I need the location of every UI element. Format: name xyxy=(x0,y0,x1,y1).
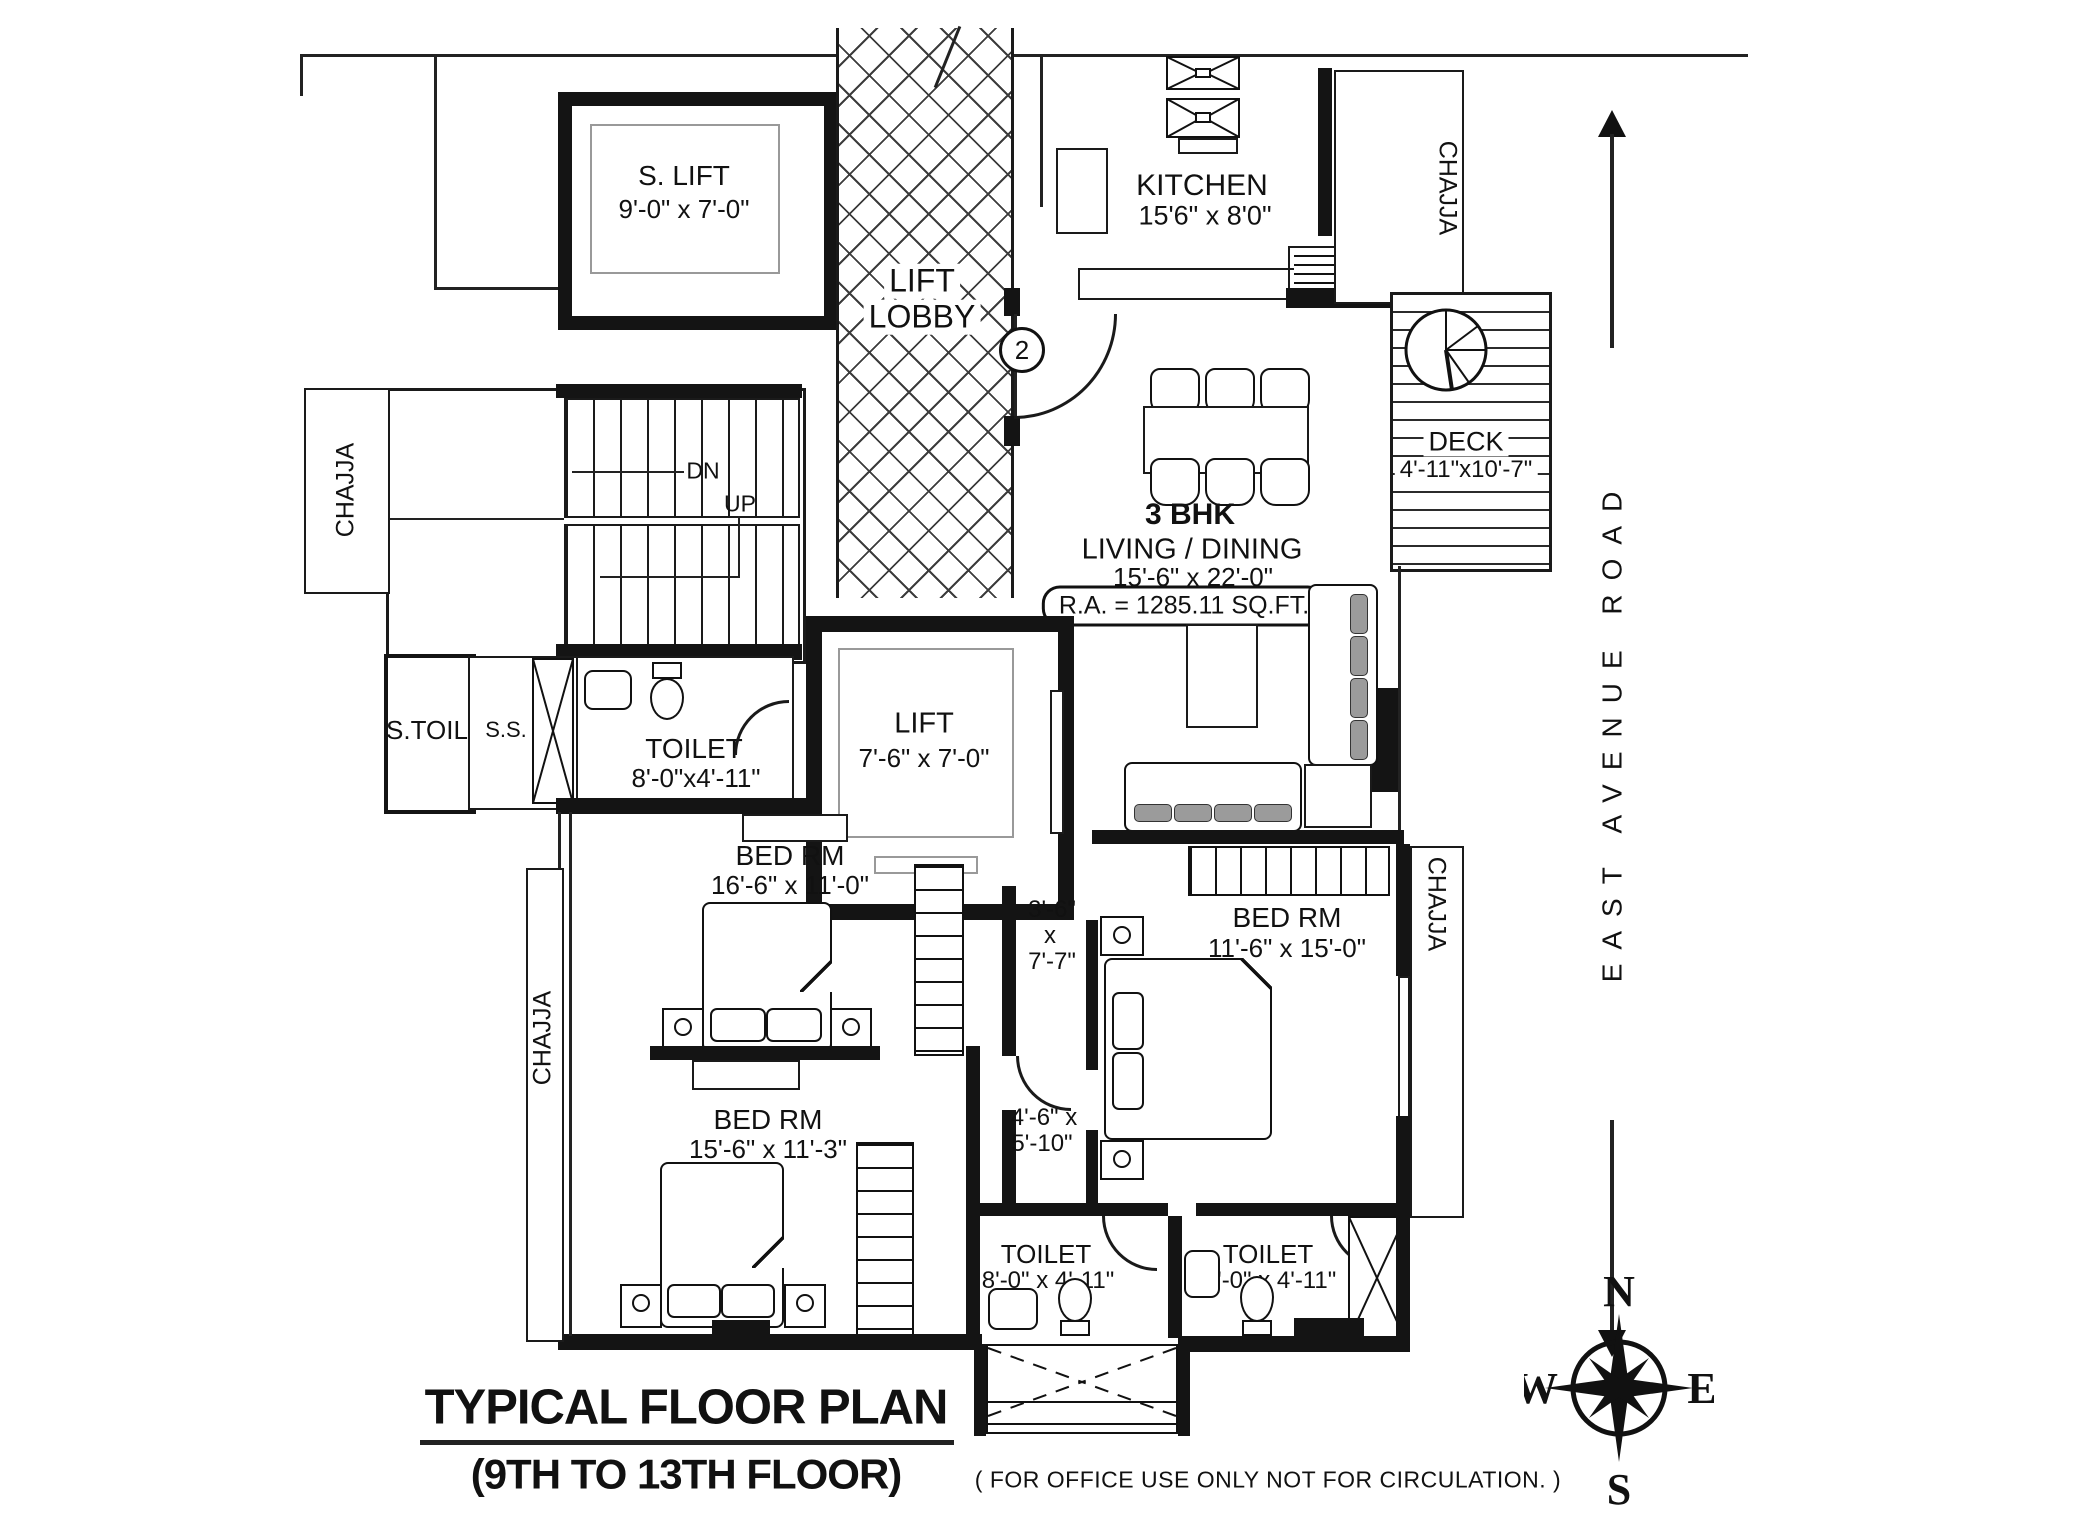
wall xyxy=(1086,920,1098,1070)
wall xyxy=(1178,1344,1190,1436)
wardrobe-icon xyxy=(856,1142,914,1336)
wall xyxy=(300,54,303,96)
room-label: TOILET xyxy=(645,734,743,764)
wall xyxy=(556,384,802,398)
window xyxy=(1398,976,1410,1120)
room-label: DECK xyxy=(1423,427,1508,456)
wall xyxy=(1040,57,1043,207)
wall xyxy=(1398,566,1401,852)
passage-dim: 5'-10" xyxy=(1011,1131,1072,1157)
passage-dim: 3'-6" xyxy=(1028,897,1076,923)
floor-plan: S. LIFT 9'-0" x 7'-0" LIFT LOBBY 2 KITCH… xyxy=(0,0,2074,1526)
wall xyxy=(1196,1203,1410,1216)
wall xyxy=(1004,416,1020,446)
bed-icon xyxy=(660,1162,784,1328)
entry-duct-icon xyxy=(986,1344,1178,1436)
page-subtitle: (9TH TO 13TH FLOOR) xyxy=(471,1451,902,1496)
footer-note: ( FOR OFFICE USE ONLY NOT FOR CIRCULATIO… xyxy=(975,1468,1561,1493)
tv-panel xyxy=(1050,690,1064,834)
room-label: BED RM xyxy=(714,1105,823,1135)
basin-icon xyxy=(584,670,632,710)
chajja-label: CHAJJA xyxy=(332,443,361,537)
room-dim: 9'-0" x 7'-0" xyxy=(619,195,750,223)
chajja-label: CHAJJA xyxy=(1433,141,1462,235)
basin-icon xyxy=(988,1288,1038,1330)
stairs-dn-label: DN xyxy=(686,459,719,484)
wall xyxy=(1396,1203,1410,1352)
chair-icon xyxy=(1260,458,1310,506)
room-label: KITCHEN xyxy=(1136,170,1268,202)
wall xyxy=(1318,68,1332,236)
nightstand-icon xyxy=(784,1284,826,1328)
road-label-text: EAST AVENUE ROAD xyxy=(1596,478,1628,983)
wall xyxy=(556,798,808,814)
room-label: S.TOIL xyxy=(386,716,468,744)
basin-icon xyxy=(1184,1250,1220,1298)
nightstand-icon xyxy=(1100,1140,1144,1180)
room-label: S.S. xyxy=(485,718,527,742)
compass-e: E xyxy=(1687,1364,1714,1413)
flue-icon xyxy=(1166,98,1240,138)
room-dim: 4'-11"x10'-7" xyxy=(1395,457,1538,483)
stairs-up-label: UP xyxy=(724,492,756,517)
room-dim: 16'-6" x 11'-0" xyxy=(711,871,869,899)
wall xyxy=(968,1203,1168,1216)
road-label: EAST AVENUE ROAD xyxy=(1578,372,1646,1088)
passage-dim: 4'-6" x xyxy=(1011,1105,1077,1131)
page-title: TYPICAL FLOOR PLAN xyxy=(425,1382,948,1435)
bed-icon xyxy=(1104,958,1272,1140)
wall xyxy=(1002,886,1016,1056)
wall xyxy=(1396,1116,1410,1210)
stairs-icon xyxy=(564,398,800,518)
wall xyxy=(1396,844,1410,976)
wc-icon xyxy=(1238,1276,1272,1334)
wall xyxy=(1092,830,1404,844)
wall xyxy=(1004,288,1020,316)
rug xyxy=(1186,624,1258,728)
road-arrow-up-icon xyxy=(1598,110,1626,137)
room-dim: 15'6" x 8'0" xyxy=(1138,201,1271,230)
duct-x-icon xyxy=(532,658,574,804)
nightstand-icon xyxy=(620,1284,662,1328)
area-badge: R.A. = 1285.11 SQ.FT. xyxy=(1042,586,1326,627)
compass-n: N xyxy=(1603,1272,1635,1316)
room-label: S. LIFT xyxy=(638,161,730,191)
sofa-icon xyxy=(1308,584,1378,766)
wall xyxy=(558,1334,982,1350)
wall xyxy=(1178,1336,1410,1352)
wardrobe-icon xyxy=(1188,846,1390,896)
stairs-icon xyxy=(564,524,800,646)
wall xyxy=(434,54,437,290)
chajja-label: CHAJJA xyxy=(1422,857,1451,951)
room-dim: 15'-6" x 11'-3" xyxy=(689,1135,847,1163)
landing-line xyxy=(390,518,564,520)
unit-type: 3 BHK xyxy=(1145,499,1235,531)
door-arc xyxy=(1102,1216,1157,1271)
compass-s: S xyxy=(1607,1465,1631,1508)
side-table xyxy=(1304,764,1372,828)
compass-w: W xyxy=(1524,1364,1558,1413)
room-label: TOILET xyxy=(1001,1240,1092,1268)
wardrobe-icon xyxy=(914,864,964,1056)
room-label: LIFT xyxy=(894,708,954,739)
passage-dim: 7'-7" xyxy=(1028,949,1076,975)
wall xyxy=(434,287,560,290)
hob-icon xyxy=(1178,138,1238,154)
nightstand-icon xyxy=(1100,916,1144,956)
chajja-strip xyxy=(526,868,564,1342)
wall xyxy=(300,54,1748,57)
wall xyxy=(966,1046,980,1346)
room-dim: 7'-6" x 7'-0" xyxy=(859,744,990,772)
room-label: LOBBY xyxy=(864,300,981,335)
dn-leader xyxy=(572,471,684,473)
bed-icon xyxy=(702,902,832,1052)
sofa-icon xyxy=(1124,762,1302,832)
wall xyxy=(569,812,572,1336)
wall xyxy=(1168,1216,1182,1338)
road-arrow-shaft xyxy=(1610,134,1614,348)
wall xyxy=(650,1046,880,1060)
up-leader xyxy=(738,516,740,578)
room-label: BED RM xyxy=(736,841,845,871)
room-label: BED RM xyxy=(1233,903,1342,933)
wc-icon xyxy=(1056,1278,1090,1334)
door-arc xyxy=(1016,1056,1071,1111)
wc-icon xyxy=(648,662,684,720)
door-tag: 2 xyxy=(999,327,1045,373)
up-leader xyxy=(600,576,740,578)
title-underline xyxy=(420,1440,954,1445)
chajja-label: CHAJJA xyxy=(529,991,558,1085)
room-label: LIFT xyxy=(884,264,960,299)
flue-icon xyxy=(1166,56,1240,90)
room-label: TOILET xyxy=(1223,1240,1314,1268)
tv-unit xyxy=(692,1060,800,1090)
kitchen-cabinet xyxy=(1056,148,1108,234)
passage-dim: x xyxy=(1044,923,1056,949)
spiral-stair-icon xyxy=(1400,304,1492,396)
wall xyxy=(974,1344,986,1436)
room-dim: 8'-0"x4'-11" xyxy=(631,764,760,792)
room-label: LIVING / DINING xyxy=(1082,534,1303,565)
tv-unit xyxy=(742,814,848,842)
